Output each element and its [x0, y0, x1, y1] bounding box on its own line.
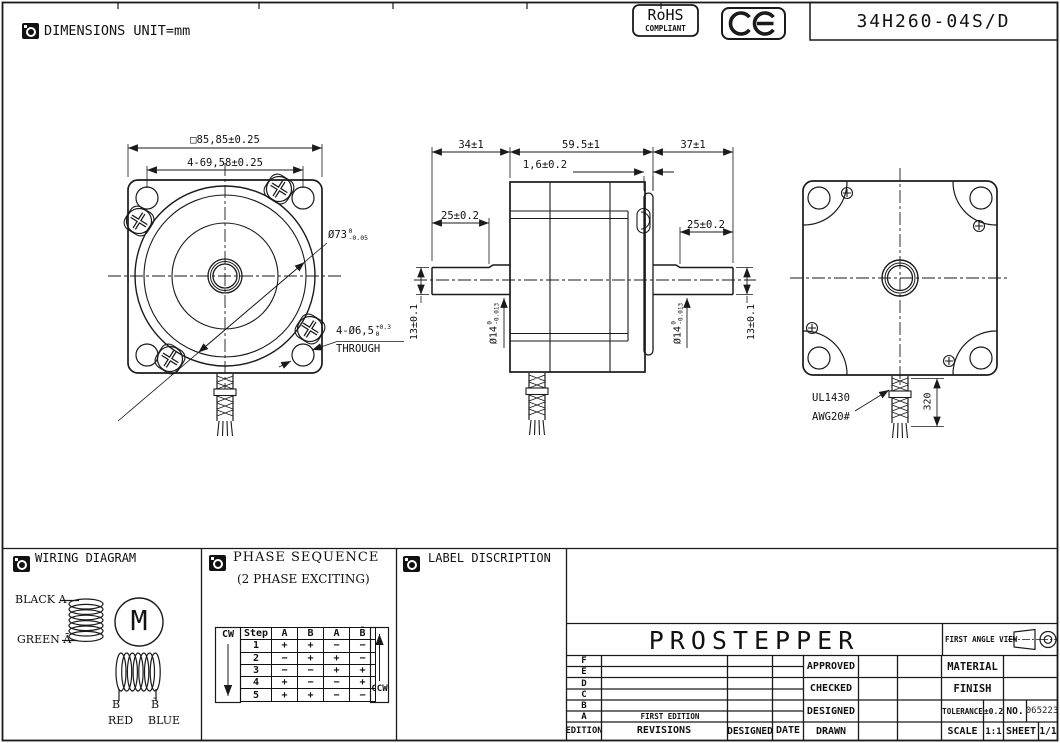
phase-cell: 2 — [241, 652, 272, 664]
revisions-header: REVISIONS — [637, 725, 691, 736]
brand-logo-icon — [22, 23, 39, 39]
phase-cell: 4 — [241, 677, 272, 689]
phase-cell: + — [298, 640, 324, 652]
approved-label: APPROVED — [807, 661, 855, 672]
checked-label: CHECKED — [810, 683, 852, 694]
phase-cell: − — [324, 689, 350, 701]
dim-mount-holes-note: THROUGH — [336, 343, 380, 355]
no-label: NO. — [1006, 706, 1023, 717]
dim-rear-shaft-dia: Ø14 0-0.013 — [672, 295, 685, 351]
rev-letter: E — [581, 667, 586, 677]
phase-cell: − — [272, 652, 298, 664]
screw-icon — [152, 341, 188, 377]
company-name: PROSTEPPER — [649, 626, 860, 655]
phase-cell: + — [272, 640, 298, 652]
dim-rear-shaft-len: 37±1 — [680, 139, 705, 151]
phase-cell: + — [298, 689, 324, 701]
tolerance-value: ±0.2 — [984, 707, 1003, 716]
front-view — [108, 144, 404, 436]
screw-icon — [261, 171, 297, 207]
phase-sequence-table: Step A B Ā B̄ 1 + + − − 2 − + + − 3 − − … — [240, 627, 376, 702]
dim-square-size: □85,85±0.25 — [190, 134, 260, 146]
rev-letter: B — [581, 701, 586, 711]
lead-b-color: RED — [108, 714, 133, 727]
phase-cell: + — [272, 689, 298, 701]
lead-b-bar-label: B̄ — [151, 698, 159, 711]
finish-label: FINISH — [954, 683, 992, 695]
designed-col-header: DESIGNED — [727, 726, 773, 737]
dim-rear-flat-len: 25±0.2 — [687, 219, 725, 231]
sheet-value: 1/1 — [1039, 726, 1056, 737]
lead-a-bar-label: GREEN Ā — [17, 633, 71, 646]
dim-body-len: 59.5±1 — [562, 139, 600, 151]
rev-letter: F — [581, 656, 586, 666]
dim-pilot-dia: Ø73 0-0.05 — [328, 228, 368, 242]
first-angle-view-label: FIRST ANGLE VIEW — [945, 635, 1017, 644]
scale-label: SCALE — [947, 726, 977, 737]
phase-header: B — [298, 628, 324, 640]
cw-label: CW — [222, 629, 234, 640]
lead-wire-spec-1: UL1430 — [812, 392, 850, 404]
dim-front-flat-len: 25±0.2 — [441, 210, 479, 222]
phase-header: Ā — [324, 628, 350, 640]
dim-mount-holes: 4-Ø6,5 +0.30 — [336, 324, 391, 338]
motor-label: M — [131, 604, 148, 637]
phase-cell: − — [272, 664, 298, 676]
ce-mark-icon — [722, 8, 785, 39]
rev-letter: D — [581, 679, 586, 689]
engineering-drawing-sheet: DIMENSIONS UNIT=mm RoHS COMPLIANT CE 34H… — [0, 0, 1060, 743]
material-label: MATERIAL — [947, 661, 998, 673]
first-edition-note: FIRST EDITION — [641, 712, 700, 721]
phase-cell: − — [298, 677, 324, 689]
brand-logo-icon — [13, 556, 30, 572]
unit-note: DIMENSIONS UNIT=mm — [44, 23, 190, 39]
phase-cell: 3 — [241, 664, 272, 676]
label-section-title: LABEL DISCRIPTION — [428, 551, 551, 565]
drawn-label: DRAWN — [816, 726, 846, 737]
drawing-linework — [0, 0, 1060, 743]
part-number: 34H260-04S/D — [810, 11, 1057, 32]
phase-cell: − — [350, 652, 376, 664]
dim-lead-wire-length: 320 — [923, 388, 934, 414]
phase-header: Step — [241, 628, 272, 640]
bottom-band-borders — [3, 549, 1058, 741]
phase-cell: 1 — [241, 640, 272, 652]
wiring-title: WIRING DIAGRAM — [35, 551, 136, 565]
date-col-header: DATE — [776, 725, 800, 736]
dim-front-shaft-len: 34±1 — [458, 139, 483, 151]
phase-cell: + — [350, 677, 376, 689]
phase-cell: + — [272, 677, 298, 689]
phase-title: PHASE SEQUENCE — [233, 550, 379, 565]
rohs-title: RoHS — [633, 6, 698, 24]
phase-cell: + — [324, 664, 350, 676]
sheet-label: SHEET — [1006, 726, 1036, 737]
dim-plate-thickness: 1,6±0.2 — [523, 159, 567, 171]
rev-letter: A — [581, 712, 586, 722]
lead-a-label: BLACK A — [15, 593, 66, 606]
lead-b-label: B — [112, 698, 120, 711]
tolerance-label: TOLERANCE — [942, 707, 983, 716]
brand-logo-icon — [403, 556, 420, 572]
phase-header: B̄ — [350, 628, 376, 640]
phase-cell: − — [324, 677, 350, 689]
phase-cell: − — [298, 664, 324, 676]
dim-bolt-circle: 4-69,58±0.25 — [187, 157, 263, 169]
side-view — [414, 147, 756, 435]
lead-b-bar-color: BLUE — [148, 714, 180, 727]
rev-letter: C — [581, 690, 586, 700]
phase-cell: + — [350, 664, 376, 676]
lead-wire-spec-2: AWG20# — [812, 411, 850, 423]
brand-logo-icon — [209, 555, 226, 571]
phase-cell: + — [298, 652, 324, 664]
dim-rear-flat-height: 13±0.1 — [745, 300, 757, 344]
scale-value: 1:1 — [985, 727, 1001, 737]
phase-subtitle: (2 PHASE EXCITING) — [237, 572, 370, 586]
phase-cell: − — [350, 689, 376, 701]
phase-cell: − — [350, 640, 376, 652]
edition-header: EDITION — [565, 726, 602, 736]
phase-header: A — [272, 628, 298, 640]
rohs-subtitle: COMPLIANT — [633, 24, 698, 33]
phase-cell: + — [324, 652, 350, 664]
dim-front-flat-height: 13±0.1 — [408, 300, 420, 344]
no-value: 065223 — [1026, 706, 1059, 716]
dim-front-shaft-dia: Ø14 0-0.013 — [488, 295, 501, 351]
phase-cell: − — [324, 640, 350, 652]
designed-label: DESIGNED — [807, 706, 855, 717]
wiring-coil-b — [116, 653, 160, 701]
phase-cell: 5 — [241, 689, 272, 701]
